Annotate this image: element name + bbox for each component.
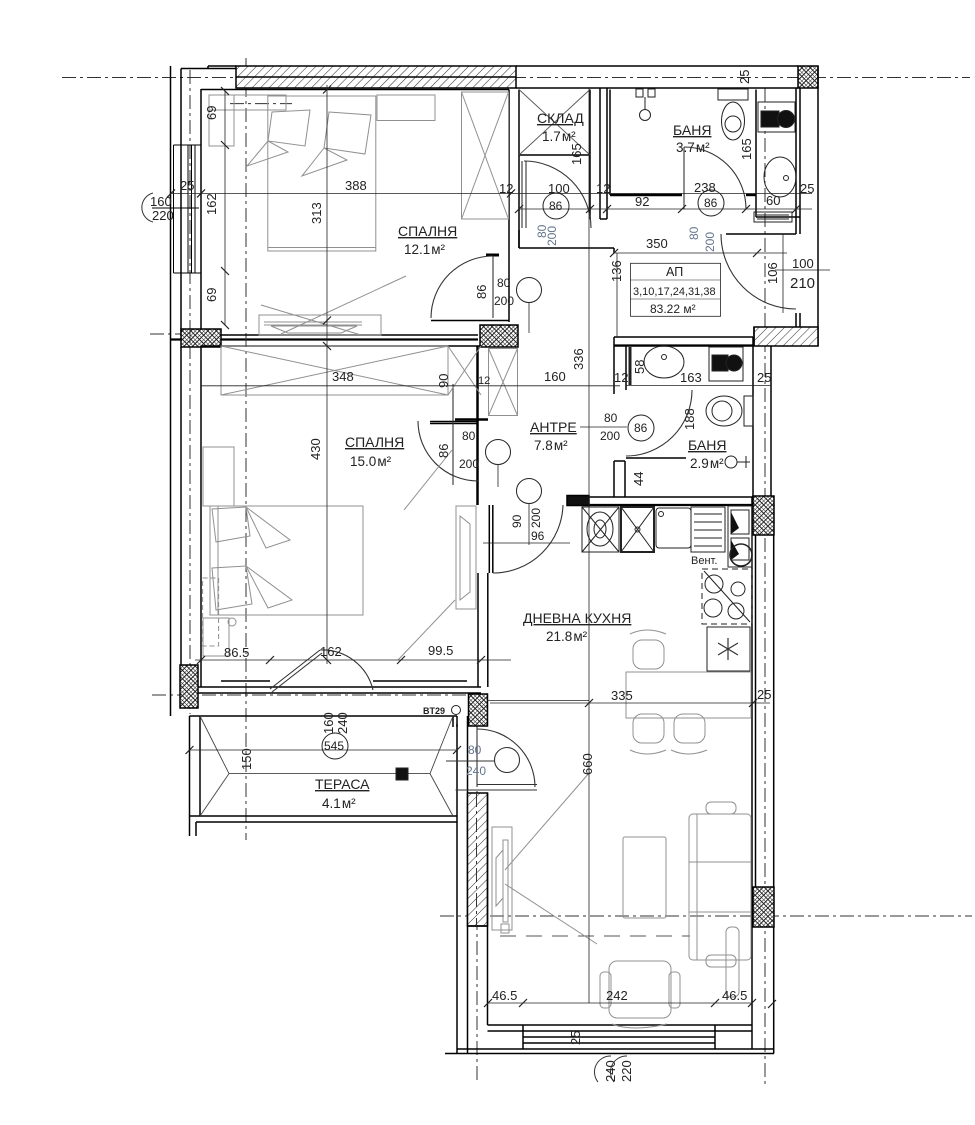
svg-text:12.1 м²: 12.1 м² [404,242,445,257]
svg-text:90: 90 [436,374,451,388]
svg-text:313: 313 [309,202,324,224]
svg-text:100: 100 [792,256,814,271]
svg-text:240: 240 [466,764,486,778]
svg-text:86.5: 86.5 [224,645,249,660]
svg-text:80: 80 [687,226,701,240]
svg-text:12: 12 [614,370,628,385]
svg-text:96: 96 [531,529,545,543]
svg-text:12: 12 [596,181,610,196]
svg-text:200: 200 [529,508,543,528]
svg-text:25: 25 [737,70,752,84]
svg-text:162: 162 [204,193,219,215]
svg-text:242: 242 [606,988,628,1003]
svg-text:545: 545 [324,739,344,753]
svg-text:165: 165 [739,138,754,160]
svg-text:136: 136 [609,260,624,282]
svg-text:86: 86 [474,285,489,299]
svg-text:58: 58 [632,360,647,374]
svg-text:60: 60 [766,193,780,208]
svg-text:25: 25 [568,1031,583,1045]
svg-text:200: 200 [703,232,717,252]
svg-text:200: 200 [494,294,514,308]
svg-text:86: 86 [704,196,718,210]
svg-text:69: 69 [204,106,219,120]
svg-text:4.1 м²: 4.1 м² [322,796,356,811]
svg-text:СПАЛНЯ: СПАЛНЯ [345,434,404,450]
svg-text:СПАЛНЯ: СПАЛНЯ [398,223,457,239]
svg-text:200: 200 [459,457,479,471]
svg-text:46.5: 46.5 [492,988,517,1003]
svg-text:160: 160 [544,369,566,384]
svg-text:162: 162 [320,644,342,659]
svg-text:430: 430 [308,438,323,460]
svg-text:21.8 м²: 21.8 м² [546,629,588,644]
svg-text:80: 80 [468,743,482,757]
svg-text:220: 220 [619,1060,634,1082]
svg-text:ТЕРАСА: ТЕРАСА [315,776,370,792]
svg-text:25: 25 [800,181,814,196]
svg-text:3,10,17,24,31,38: 3,10,17,24,31,38 [633,286,716,298]
svg-text:ДНЕВНА КУХНЯ: ДНЕВНА КУХНЯ [523,610,631,626]
svg-text:25: 25 [180,178,194,193]
svg-text:335: 335 [611,688,633,703]
svg-text:336: 336 [571,348,586,370]
svg-text:188: 188 [682,408,697,430]
svg-text:210: 210 [790,275,815,292]
svg-text:3.7 м²: 3.7 м² [676,140,710,155]
svg-text:80: 80 [462,429,476,443]
svg-text:200: 200 [600,429,620,443]
svg-text:99.5: 99.5 [428,643,453,658]
svg-text:388: 388 [345,178,367,193]
svg-text:86: 86 [549,199,563,213]
svg-text:СКЛАД: СКЛАД [537,110,584,126]
svg-text:238: 238 [694,180,716,195]
svg-text:80: 80 [497,276,511,290]
svg-text:165: 165 [569,143,584,165]
svg-text:АП: АП [666,265,683,279]
svg-text:69: 69 [204,288,219,302]
svg-text:350: 350 [646,236,668,251]
svg-text:1.7 м²: 1.7 м² [542,129,576,144]
svg-text:86: 86 [436,444,451,458]
svg-text:Вент.: Вент. [691,555,717,567]
svg-text:12: 12 [478,375,490,387]
svg-text:83.22 м²: 83.22 м² [650,302,696,316]
svg-text:44: 44 [631,472,646,486]
svg-text:90: 90 [510,514,524,528]
svg-text:160: 160 [150,194,172,209]
svg-text:348: 348 [332,369,354,384]
svg-text:25: 25 [757,687,771,702]
svg-text:160: 160 [321,712,336,734]
svg-text:660: 660 [580,753,595,775]
svg-text:АНТРЕ: АНТРЕ [530,419,577,435]
svg-text:80: 80 [604,411,618,425]
svg-text:150: 150 [239,748,254,770]
svg-text:BT29: BT29 [423,706,445,716]
svg-text:7.8 м²: 7.8 м² [534,438,568,453]
svg-text:240: 240 [335,712,350,734]
svg-text:БАНЯ: БАНЯ [673,122,711,138]
svg-text:163: 163 [680,370,702,385]
svg-text:12: 12 [499,181,513,196]
svg-text:92: 92 [635,194,649,209]
svg-text:15.0 м²: 15.0 м² [350,454,392,469]
svg-text:220: 220 [152,208,174,223]
svg-text:106: 106 [765,262,780,284]
svg-text:БАНЯ: БАНЯ [688,437,726,453]
svg-text:46.5: 46.5 [722,988,747,1003]
svg-text:86: 86 [634,421,648,435]
svg-text:2.9 м²: 2.9 м² [690,456,724,471]
svg-text:200: 200 [545,226,559,246]
svg-text:25: 25 [757,370,771,385]
